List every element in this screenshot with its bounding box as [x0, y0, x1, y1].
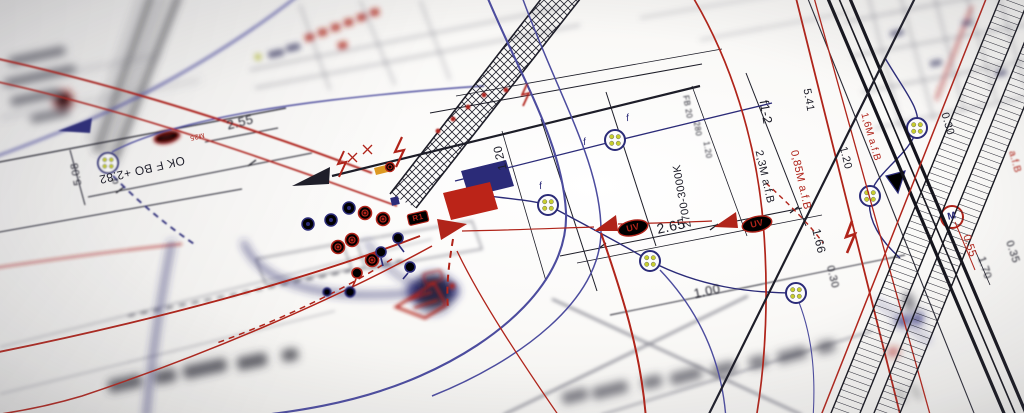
- cable-junction-icon: [538, 195, 558, 215]
- blurred-text-rows: [4, 46, 76, 123]
- cable-junction-icon: [860, 186, 880, 206]
- cable-junction-icon: [605, 130, 625, 150]
- navy-arrow-icon: [58, 118, 92, 133]
- cable-junction-icon: [786, 283, 806, 303]
- cable-junction-icon: [640, 251, 660, 271]
- uv-arrow-icon: [714, 212, 738, 228]
- right-structure: [707, 0, 1024, 413]
- cable-junction-icon: [907, 118, 927, 138]
- red-asterisk-marks: [348, 145, 372, 162]
- blurred-red-hatch-marks: [304, 8, 379, 50]
- fixture-label: f1-2: [758, 99, 775, 125]
- wiring-lines: [230, 0, 918, 413]
- ladder-hatch-band: [829, 0, 1024, 413]
- value-label: 280: [692, 121, 702, 137]
- uv-arrow-icon: [594, 215, 618, 231]
- blueprint-drawing: [0, 0, 1024, 413]
- blueprint-photo: UV UV UV 2.65 1.00 1.66 0.30 0.30 0.55 1…: [0, 0, 1024, 413]
- device-circle-icon: [302, 202, 355, 230]
- blurred-large-text-row: [107, 347, 299, 393]
- blurred-thick-curves-bottom-left: [146, 241, 424, 413]
- distribution-board-red: [443, 182, 498, 220]
- dimension-label: 1.20: [702, 141, 713, 159]
- blurred-navy-text-blobs: [268, 43, 301, 59]
- black-arrow-icon: [292, 167, 330, 186]
- lightning-icon: [395, 137, 404, 167]
